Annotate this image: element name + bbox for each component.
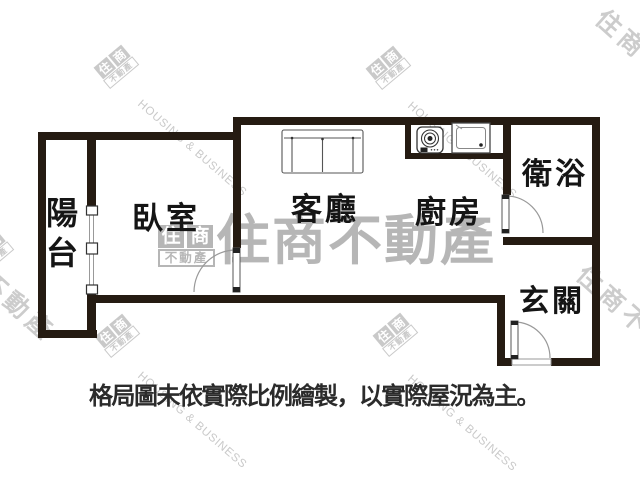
door-arc [194,250,236,292]
wall-bathroom-bottom [503,237,600,245]
wall-outer-left [38,132,46,338]
wall-living-top [233,117,600,125]
room-label-entrance: 玄關 [519,287,585,317]
wall-entrance-left [497,295,505,366]
floorplan-image: 住 商 不動產 住 商 不動產 住 商 不動產 住 商 不動產 [0,0,640,480]
bathroom-door [502,195,543,233]
room-label-bedroom: 臥室 [132,203,200,234]
door-arc [506,196,543,233]
stove-icon [417,127,443,153]
door-leaf [233,248,240,292]
wall-main-bottom [87,295,505,303]
room-label-balcony: 陽台 [46,193,82,273]
door-threshold [512,359,551,365]
bedroom-door [194,248,240,292]
wall-balcony-divider-top [87,132,96,208]
wall-bedroom-living-divider [233,117,241,248]
door-leaf [502,195,509,233]
wall-entrance-bottom-left [497,358,512,366]
entrance-door [511,321,551,365]
wall-bedroom-top [38,132,241,140]
counter-edge-bottom [405,153,511,159]
door-leaf [511,321,518,359]
sink-icon [452,123,490,153]
room-label-living: 客廳 [291,194,359,225]
room-label-kitchen: 廚房 [415,197,483,228]
room-label-bathroom: 衛浴 [522,160,588,190]
door-arc [514,322,550,358]
balcony-window [87,206,98,294]
disclaimer-text: 格局圖未依實際比例繪製，以實際屋況為主。 [89,385,539,409]
sofa [282,130,363,173]
wall-entrance-bottom-right [551,358,600,366]
